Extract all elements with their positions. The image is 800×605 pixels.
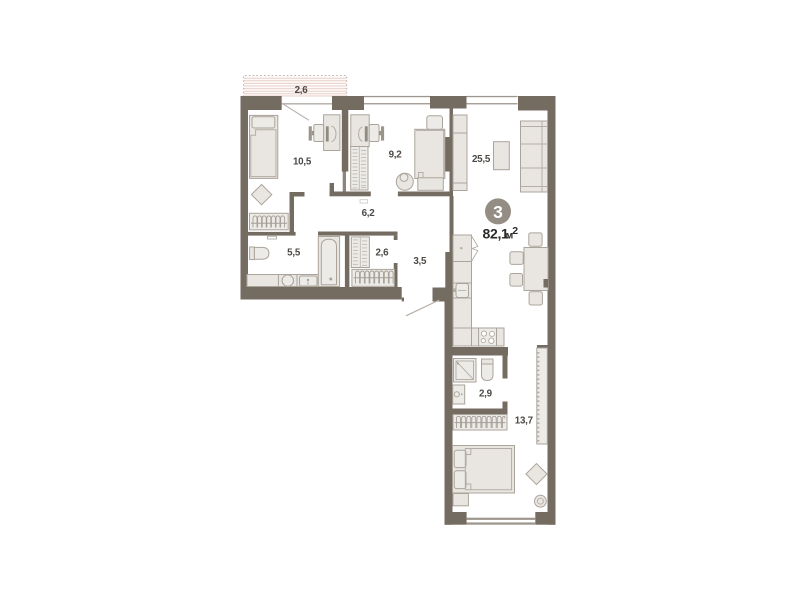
svg-text:10,5: 10,5 bbox=[293, 157, 312, 168]
svg-text:3: 3 bbox=[493, 202, 503, 222]
svg-text:6,2: 6,2 bbox=[362, 208, 376, 219]
svg-text:13,7: 13,7 bbox=[515, 415, 534, 426]
svg-text:2: 2 bbox=[512, 225, 518, 237]
svg-text:2,6: 2,6 bbox=[295, 85, 309, 96]
svg-text:9,2: 9,2 bbox=[389, 150, 403, 161]
svg-text:3,5: 3,5 bbox=[413, 256, 427, 267]
svg-text:2,6: 2,6 bbox=[375, 247, 389, 258]
svg-text:5,5: 5,5 bbox=[287, 247, 301, 258]
svg-text:25,5: 25,5 bbox=[472, 154, 491, 165]
svg-text:2,9: 2,9 bbox=[479, 389, 493, 400]
